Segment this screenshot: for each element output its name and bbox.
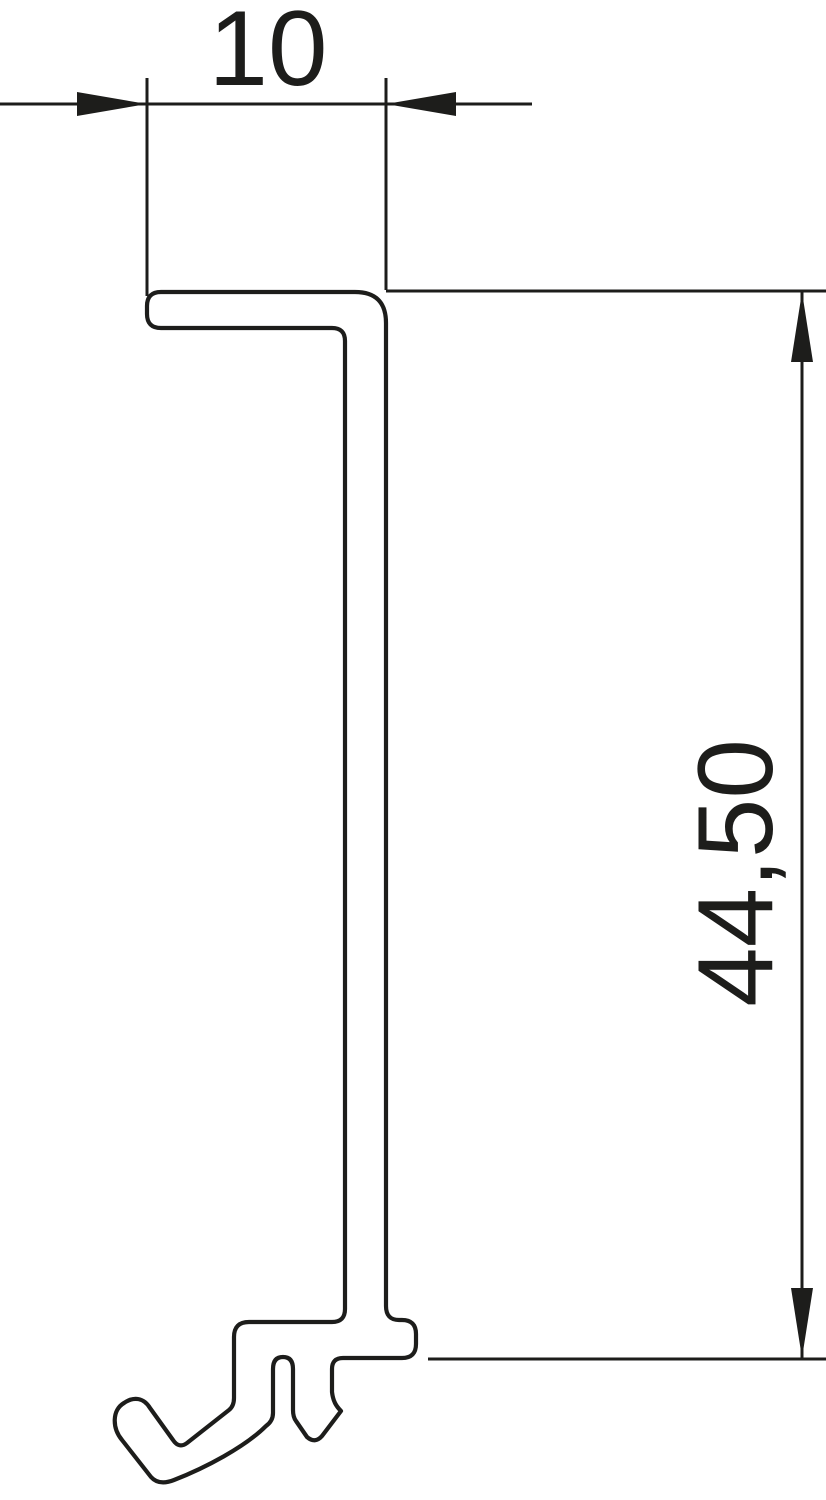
- profile-dimension-drawing: 10 44,50: [0, 0, 826, 1500]
- profile-outline: [115, 292, 416, 1482]
- width-dimension-label: 10: [208, 0, 327, 108]
- width-arrowhead-right-icon: [386, 92, 456, 116]
- height-arrowhead-top-icon: [791, 292, 813, 362]
- technical-drawing-canvas: 10 44,50: [0, 0, 826, 1500]
- height-dimension-label: 44,50: [675, 739, 795, 1007]
- dimension-annotations: 10 44,50: [77, 0, 813, 1358]
- width-arrowhead-left-icon: [77, 92, 147, 116]
- height-arrowhead-bottom-icon: [791, 1288, 813, 1358]
